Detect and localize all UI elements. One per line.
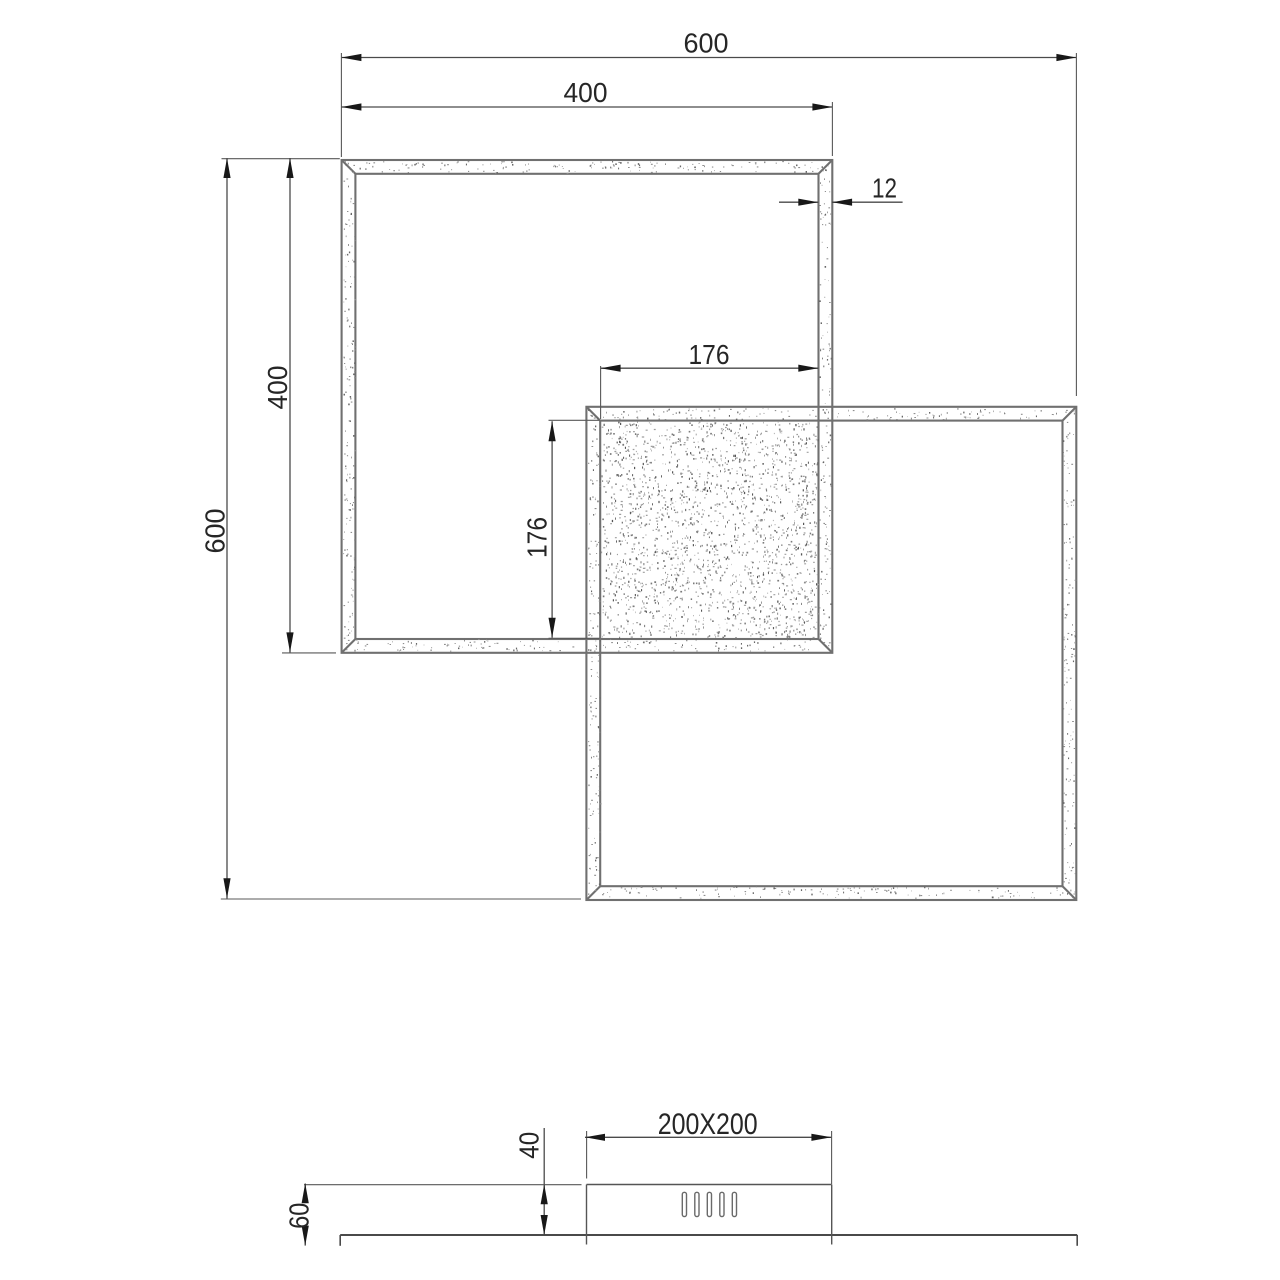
svg-text:176: 176 <box>521 517 552 558</box>
svg-text:600: 600 <box>684 27 729 58</box>
svg-text:40: 40 <box>513 1132 544 1159</box>
svg-text:400: 400 <box>564 77 608 108</box>
svg-text:12: 12 <box>872 173 897 204</box>
svg-text:400: 400 <box>262 366 293 410</box>
svg-text:600: 600 <box>199 509 230 554</box>
svg-text:60: 60 <box>284 1203 315 1229</box>
svg-text:176: 176 <box>689 339 730 370</box>
svg-text:200X200: 200X200 <box>658 1108 758 1141</box>
